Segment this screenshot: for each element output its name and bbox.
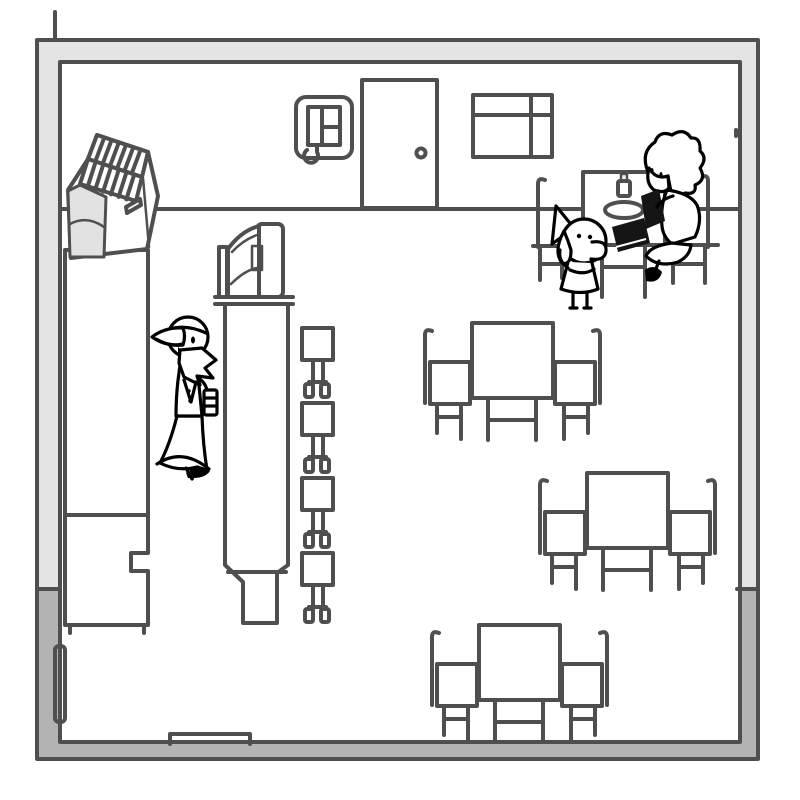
menu-board-frame bbox=[473, 95, 552, 157]
display-back-strip bbox=[219, 247, 227, 297]
customer-eye-right bbox=[659, 172, 662, 178]
bottle bbox=[618, 181, 630, 196]
dog-eye-right bbox=[588, 235, 592, 239]
door-panel bbox=[362, 80, 437, 208]
wall-phone bbox=[296, 97, 352, 163]
dog-muzzle bbox=[591, 242, 606, 260]
service-counter bbox=[65, 250, 148, 633]
menu-board bbox=[473, 95, 552, 157]
customer-eye-left bbox=[650, 168, 653, 174]
counter-upper-section bbox=[65, 250, 148, 515]
waiter-eye bbox=[191, 337, 195, 344]
waiter-button-2 bbox=[188, 399, 191, 402]
door bbox=[362, 80, 437, 208]
sketch-scene bbox=[0, 0, 800, 800]
counter-body bbox=[225, 304, 288, 623]
dog-eye-left bbox=[577, 234, 581, 238]
cafe-drawing bbox=[0, 0, 800, 800]
waiter-button-1 bbox=[187, 389, 190, 392]
counter-lower-section bbox=[65, 515, 148, 625]
plate bbox=[605, 202, 643, 218]
wall-band-dark-bottom bbox=[37, 742, 758, 759]
